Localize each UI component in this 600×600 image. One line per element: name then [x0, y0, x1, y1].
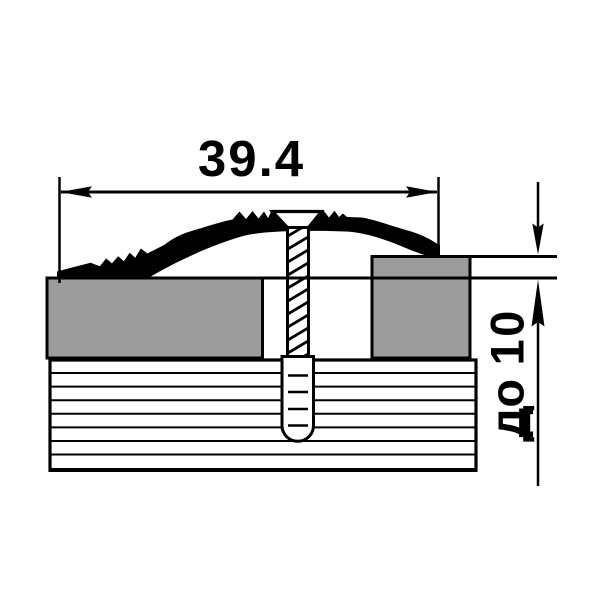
- svg-text:10: 10: [481, 308, 534, 365]
- svg-text:39.4: 39.4: [198, 130, 305, 187]
